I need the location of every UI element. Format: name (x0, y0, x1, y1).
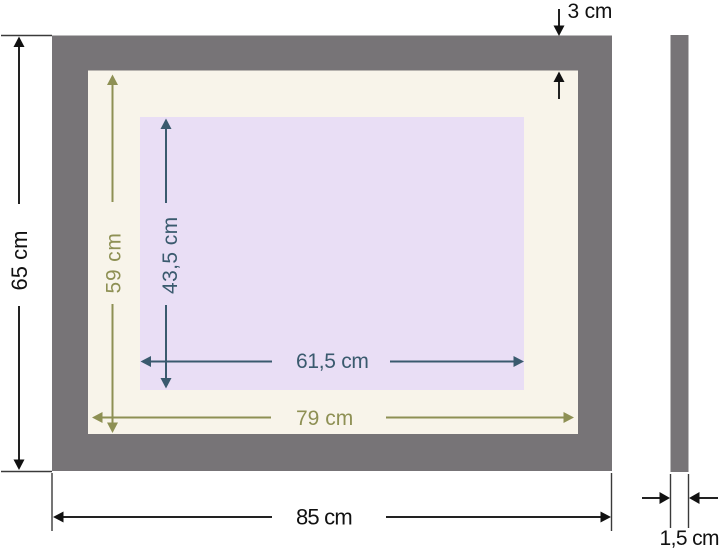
svg-text:79 cm: 79 cm (296, 407, 353, 430)
svg-text:43,5 cm: 43,5 cm (159, 217, 182, 295)
svg-text:61,5 cm: 61,5 cm (296, 350, 369, 373)
svg-text:1,5 cm: 1,5 cm (660, 527, 720, 550)
svg-text:3 cm: 3 cm (568, 0, 613, 23)
svg-text:65 cm: 65 cm (7, 231, 32, 291)
svg-text:59 cm: 59 cm (103, 232, 126, 293)
svg-text:85 cm: 85 cm (296, 505, 352, 530)
